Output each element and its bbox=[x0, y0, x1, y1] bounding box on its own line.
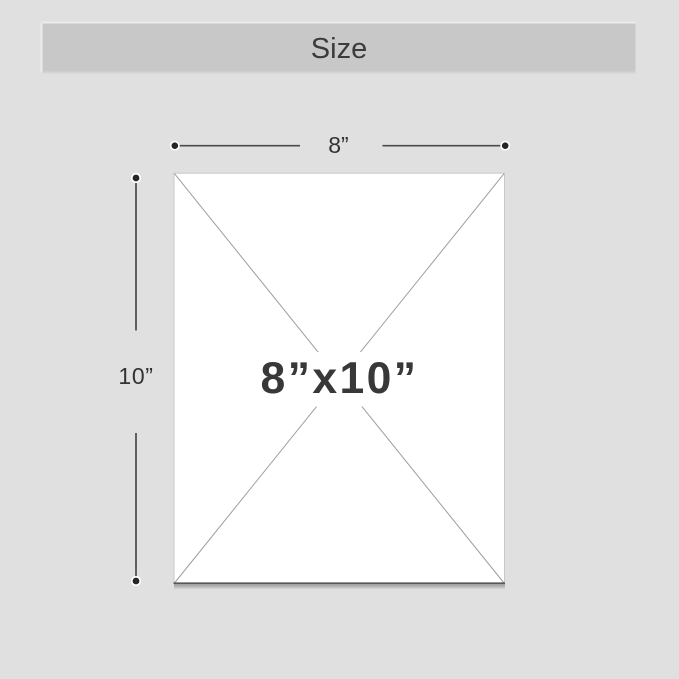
svg-text:10”: 10” bbox=[118, 363, 153, 389]
svg-text:Size: Size bbox=[311, 33, 367, 65]
svg-text:8”x10”: 8”x10” bbox=[261, 354, 419, 403]
svg-text:8”: 8” bbox=[328, 132, 348, 158]
